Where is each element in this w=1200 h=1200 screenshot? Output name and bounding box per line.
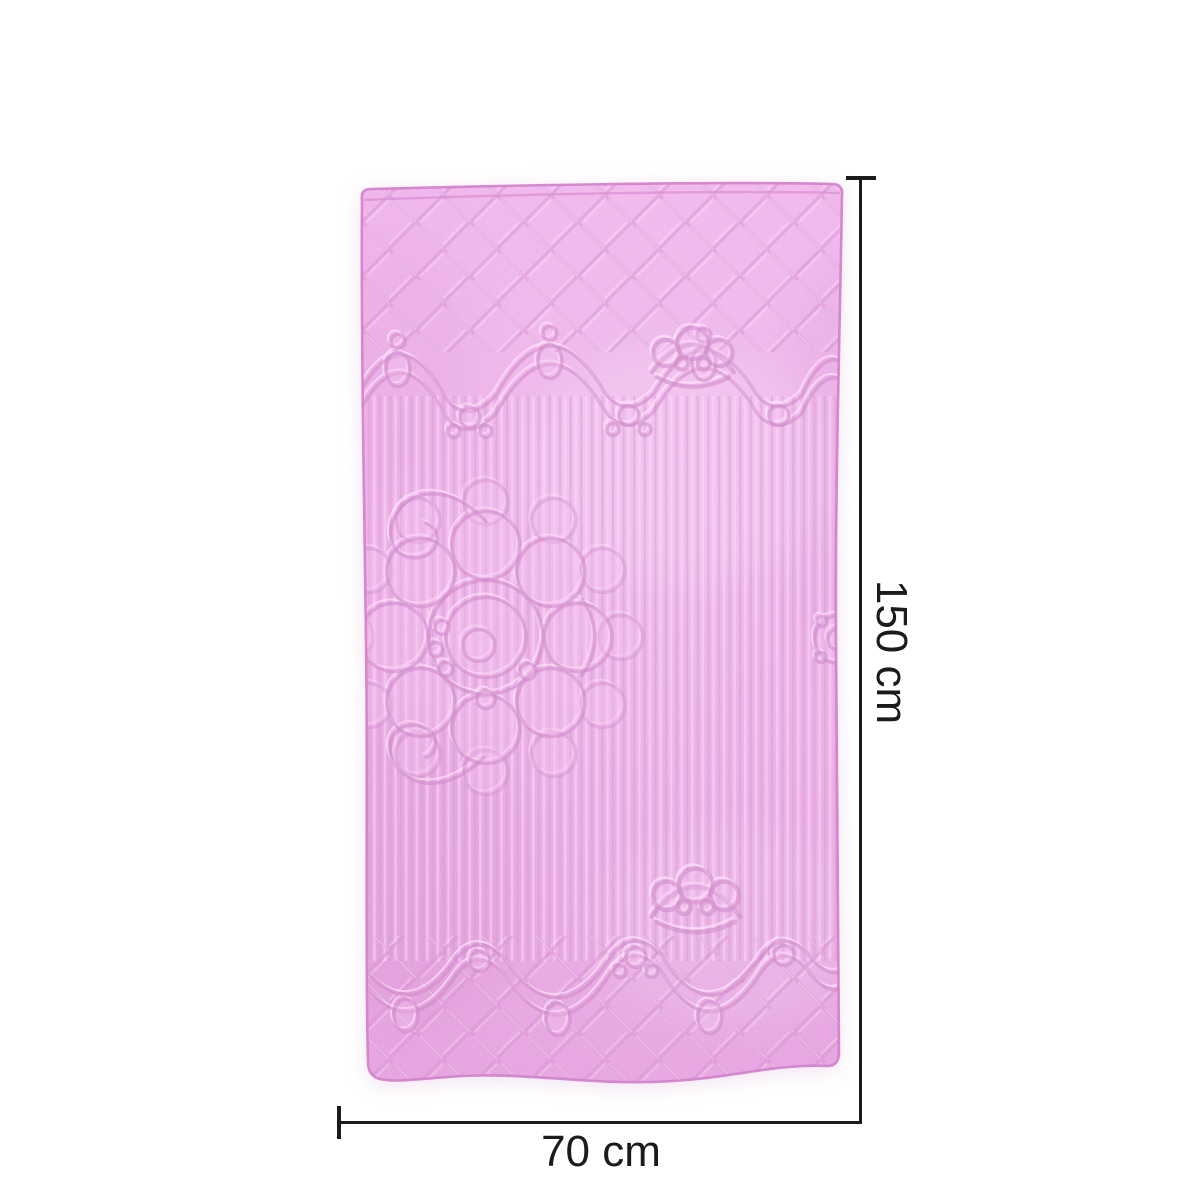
width-dimension-label: 70 cm bbox=[541, 1130, 661, 1174]
product-dimension-figure: 150 cm 70 cm bbox=[0, 0, 1200, 1200]
towel-product-image bbox=[335, 168, 865, 1103]
height-dimension-line bbox=[859, 177, 862, 1124]
height-dimension-label: 150 cm bbox=[869, 580, 913, 724]
width-dimension-line bbox=[338, 1121, 862, 1124]
